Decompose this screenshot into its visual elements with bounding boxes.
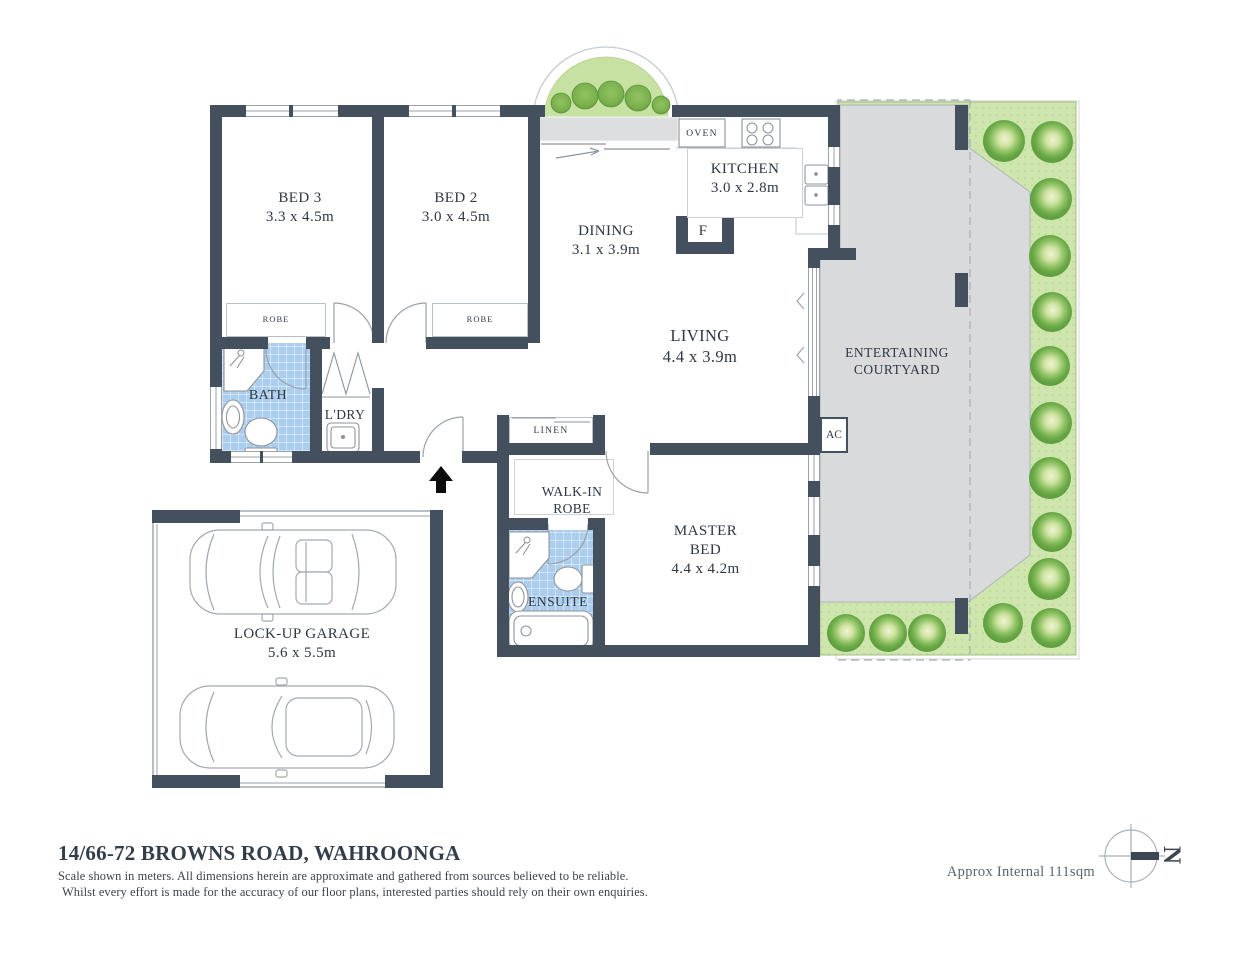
bath-shower xyxy=(224,345,264,391)
courtyard-label: ENTERTAINING COURTYARD xyxy=(833,344,961,379)
laundry-tub xyxy=(327,423,359,452)
window xyxy=(263,451,292,463)
room-name: ROBE xyxy=(526,500,618,517)
courtyard-wall-stub xyxy=(955,273,968,307)
room-name: ENTERTAINING xyxy=(833,344,961,361)
wall-segment xyxy=(808,584,820,645)
sliding-door xyxy=(808,268,820,396)
wall-segment xyxy=(808,396,820,455)
room-name: DINING xyxy=(556,222,656,241)
master-bed-label: MASTER BED 4.4 x 4.2m xyxy=(638,522,773,580)
window xyxy=(828,205,840,225)
wall-segment xyxy=(808,479,820,497)
bed3-label: BED 3 3.3 x 4.5m xyxy=(225,189,375,227)
garage-label: LOCK-UP GARAGE 5.6 x 5.5m xyxy=(212,625,392,663)
compass-north-label: N xyxy=(1157,841,1185,869)
linen-sliding-door xyxy=(512,418,590,422)
room-name: BED xyxy=(638,541,773,560)
window xyxy=(808,455,820,481)
window xyxy=(246,105,289,117)
room-dims: 4.4 x 3.9m xyxy=(635,346,765,367)
bath-vanity xyxy=(222,400,244,434)
internal-area-note: Approx Internal 111sqm xyxy=(940,864,1095,881)
room-name: COURTYARD xyxy=(833,361,961,378)
wall-segment xyxy=(528,117,540,343)
room-name: LIVING xyxy=(635,325,765,346)
window xyxy=(409,105,452,117)
garage-wall xyxy=(152,510,240,523)
bath-label: BATH xyxy=(238,387,298,405)
cooktop xyxy=(742,119,780,147)
disclaimer-line-1: Scale shown in meters. All dimensions he… xyxy=(58,869,629,884)
room-dims: 3.3 x 4.5m xyxy=(225,208,375,227)
wall-segment xyxy=(426,337,528,349)
linen-label: LINEN xyxy=(509,425,593,437)
room-name: LOCK-UP GARAGE xyxy=(212,625,392,644)
room-name: WALK-IN xyxy=(526,483,618,500)
wall-segment xyxy=(509,443,605,455)
wall-segment xyxy=(650,443,820,455)
bed2-robe-label: ROBE xyxy=(432,314,528,325)
fixtures-layer xyxy=(0,0,1242,960)
room-name: BED 3 xyxy=(225,189,375,208)
ac-unit: AC xyxy=(820,417,848,453)
floorplan-page: AC BED 3 3.3 x 4.5m BED 2 3.0 x 4.5m DIN… xyxy=(0,0,1242,960)
garage-wall xyxy=(430,510,443,788)
ensuite-toilet xyxy=(554,565,595,593)
wall-segment xyxy=(310,343,322,451)
laundry-label: L'DRY xyxy=(316,406,374,423)
wall-segment xyxy=(372,117,384,343)
wall-segment xyxy=(808,533,820,566)
disclaimer-line-2: Whilst every effort is made for the accu… xyxy=(62,885,648,900)
laundry-bifold-door xyxy=(322,353,370,397)
bed3-robe-label: ROBE xyxy=(226,314,326,325)
room-dims: 5.6 x 5.5m xyxy=(212,644,392,663)
room-name: BED 2 xyxy=(382,189,530,208)
dining-label: DINING 3.1 x 3.9m xyxy=(556,222,656,260)
living-slider-arrows xyxy=(797,293,804,363)
courtyard-wall-stub xyxy=(955,598,968,634)
wall-segment xyxy=(672,105,840,117)
wall-segment xyxy=(222,337,268,349)
entry-arrow-icon xyxy=(429,466,453,493)
wall-segment xyxy=(497,415,509,657)
kitchen-label: KITCHEN 3.0 x 2.8m xyxy=(687,160,803,198)
ensuite-label: ENSUITE xyxy=(524,593,592,610)
fridge-label: F xyxy=(688,222,718,241)
window xyxy=(210,387,222,449)
garage-wall xyxy=(385,775,443,788)
window xyxy=(231,451,260,463)
living-label: LIVING 4.4 x 3.9m xyxy=(635,325,765,367)
room-dims: 4.4 x 4.2m xyxy=(638,560,773,579)
bed2-label: BED 2 3.0 x 4.5m xyxy=(382,189,530,227)
room-name: KITCHEN xyxy=(687,160,803,179)
courtyard-wall-stub xyxy=(955,105,968,150)
window xyxy=(808,497,820,535)
window xyxy=(293,105,338,117)
wall-segment xyxy=(722,216,734,254)
oven-label: OVEN xyxy=(678,128,726,140)
wall-segment xyxy=(593,518,605,657)
room-dims: 3.1 x 3.9m xyxy=(556,241,656,260)
room-dims: 3.0 x 2.8m xyxy=(687,179,803,198)
ensuite-shower xyxy=(509,532,549,578)
wall-segment xyxy=(828,117,840,254)
room-name: MASTER xyxy=(638,522,773,541)
kitchen-sink xyxy=(805,165,828,205)
walk-in-robe-label: WALK-IN ROBE xyxy=(526,483,618,518)
room-dims: 3.0 x 4.5m xyxy=(382,208,530,227)
window xyxy=(828,147,840,167)
porch-sliding-door xyxy=(541,144,670,158)
window xyxy=(456,105,500,117)
garage-wall xyxy=(152,775,240,788)
ac-label: AC xyxy=(826,429,842,441)
page-title: 14/66-72 BROWNS ROAD, WAHROONGA xyxy=(58,841,461,866)
wall-segment xyxy=(507,518,548,530)
window xyxy=(808,566,820,586)
wall-segment xyxy=(497,645,820,657)
